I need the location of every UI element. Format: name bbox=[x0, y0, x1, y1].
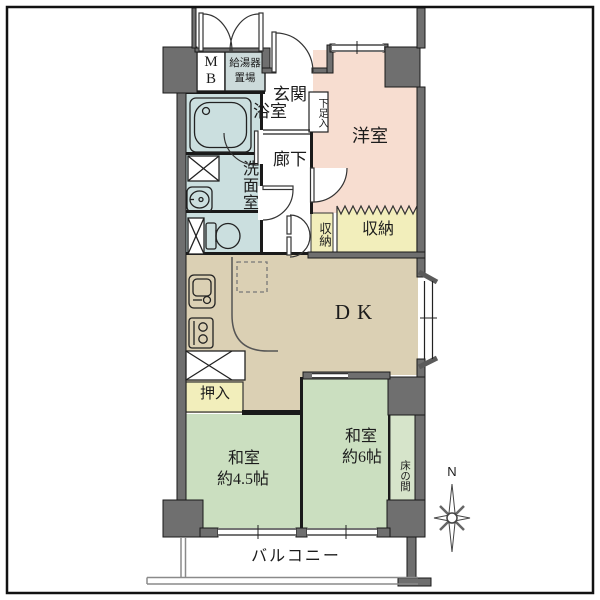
entrance-threshold bbox=[263, 130, 310, 134]
tokonoma-label: 床の間 bbox=[395, 451, 410, 501]
water-heater-label: 給湯器 置場 bbox=[224, 56, 266, 86]
meter-box-doors bbox=[199, 13, 263, 51]
washing-machine-icon bbox=[188, 156, 219, 181]
storage-x-box-icon bbox=[186, 351, 245, 380]
bay-window bbox=[419, 272, 437, 367]
shoe-cabinet-label: 下足入 bbox=[310, 95, 327, 131]
japanese-room-45-size: 約4.5帖 bbox=[204, 471, 282, 489]
hallway-double-doors bbox=[287, 215, 310, 257]
japanese-room-45-label: 和室 bbox=[222, 450, 266, 468]
bathroom-label: 浴室 bbox=[246, 102, 294, 122]
storage-large-label: 収納 bbox=[355, 221, 401, 239]
compass-icon bbox=[434, 484, 470, 552]
hallway-label: 廊下 bbox=[270, 150, 310, 170]
western-room-label: 洋室 bbox=[348, 126, 392, 147]
balcony-label: バルコニー bbox=[247, 548, 345, 566]
sliding-door bbox=[312, 374, 348, 379]
floor-plan: M B 給湯器 置場 玄関 下足入 浴室 洗面室 廊下 洋室 収納 収納 DK … bbox=[0, 0, 600, 600]
japanese-room-6-label: 和室 bbox=[338, 428, 384, 446]
meter-box-b: B bbox=[206, 71, 216, 87]
storage-small-label: 収納 bbox=[313, 217, 331, 251]
washroom-label: 洗面室 bbox=[237, 155, 257, 215]
meter-box-label: M B bbox=[198, 54, 224, 88]
compass-north-label: N bbox=[443, 465, 461, 480]
entrance-door bbox=[272, 32, 313, 72]
japanese-room-6-size: 約6帖 bbox=[334, 449, 390, 467]
oshiire-label: 押入 bbox=[192, 386, 238, 403]
washroom-door bbox=[263, 186, 293, 220]
dk-label: DK bbox=[327, 300, 387, 324]
toilet-shelf-icon bbox=[188, 218, 204, 254]
meter-box-m: M bbox=[204, 54, 217, 70]
